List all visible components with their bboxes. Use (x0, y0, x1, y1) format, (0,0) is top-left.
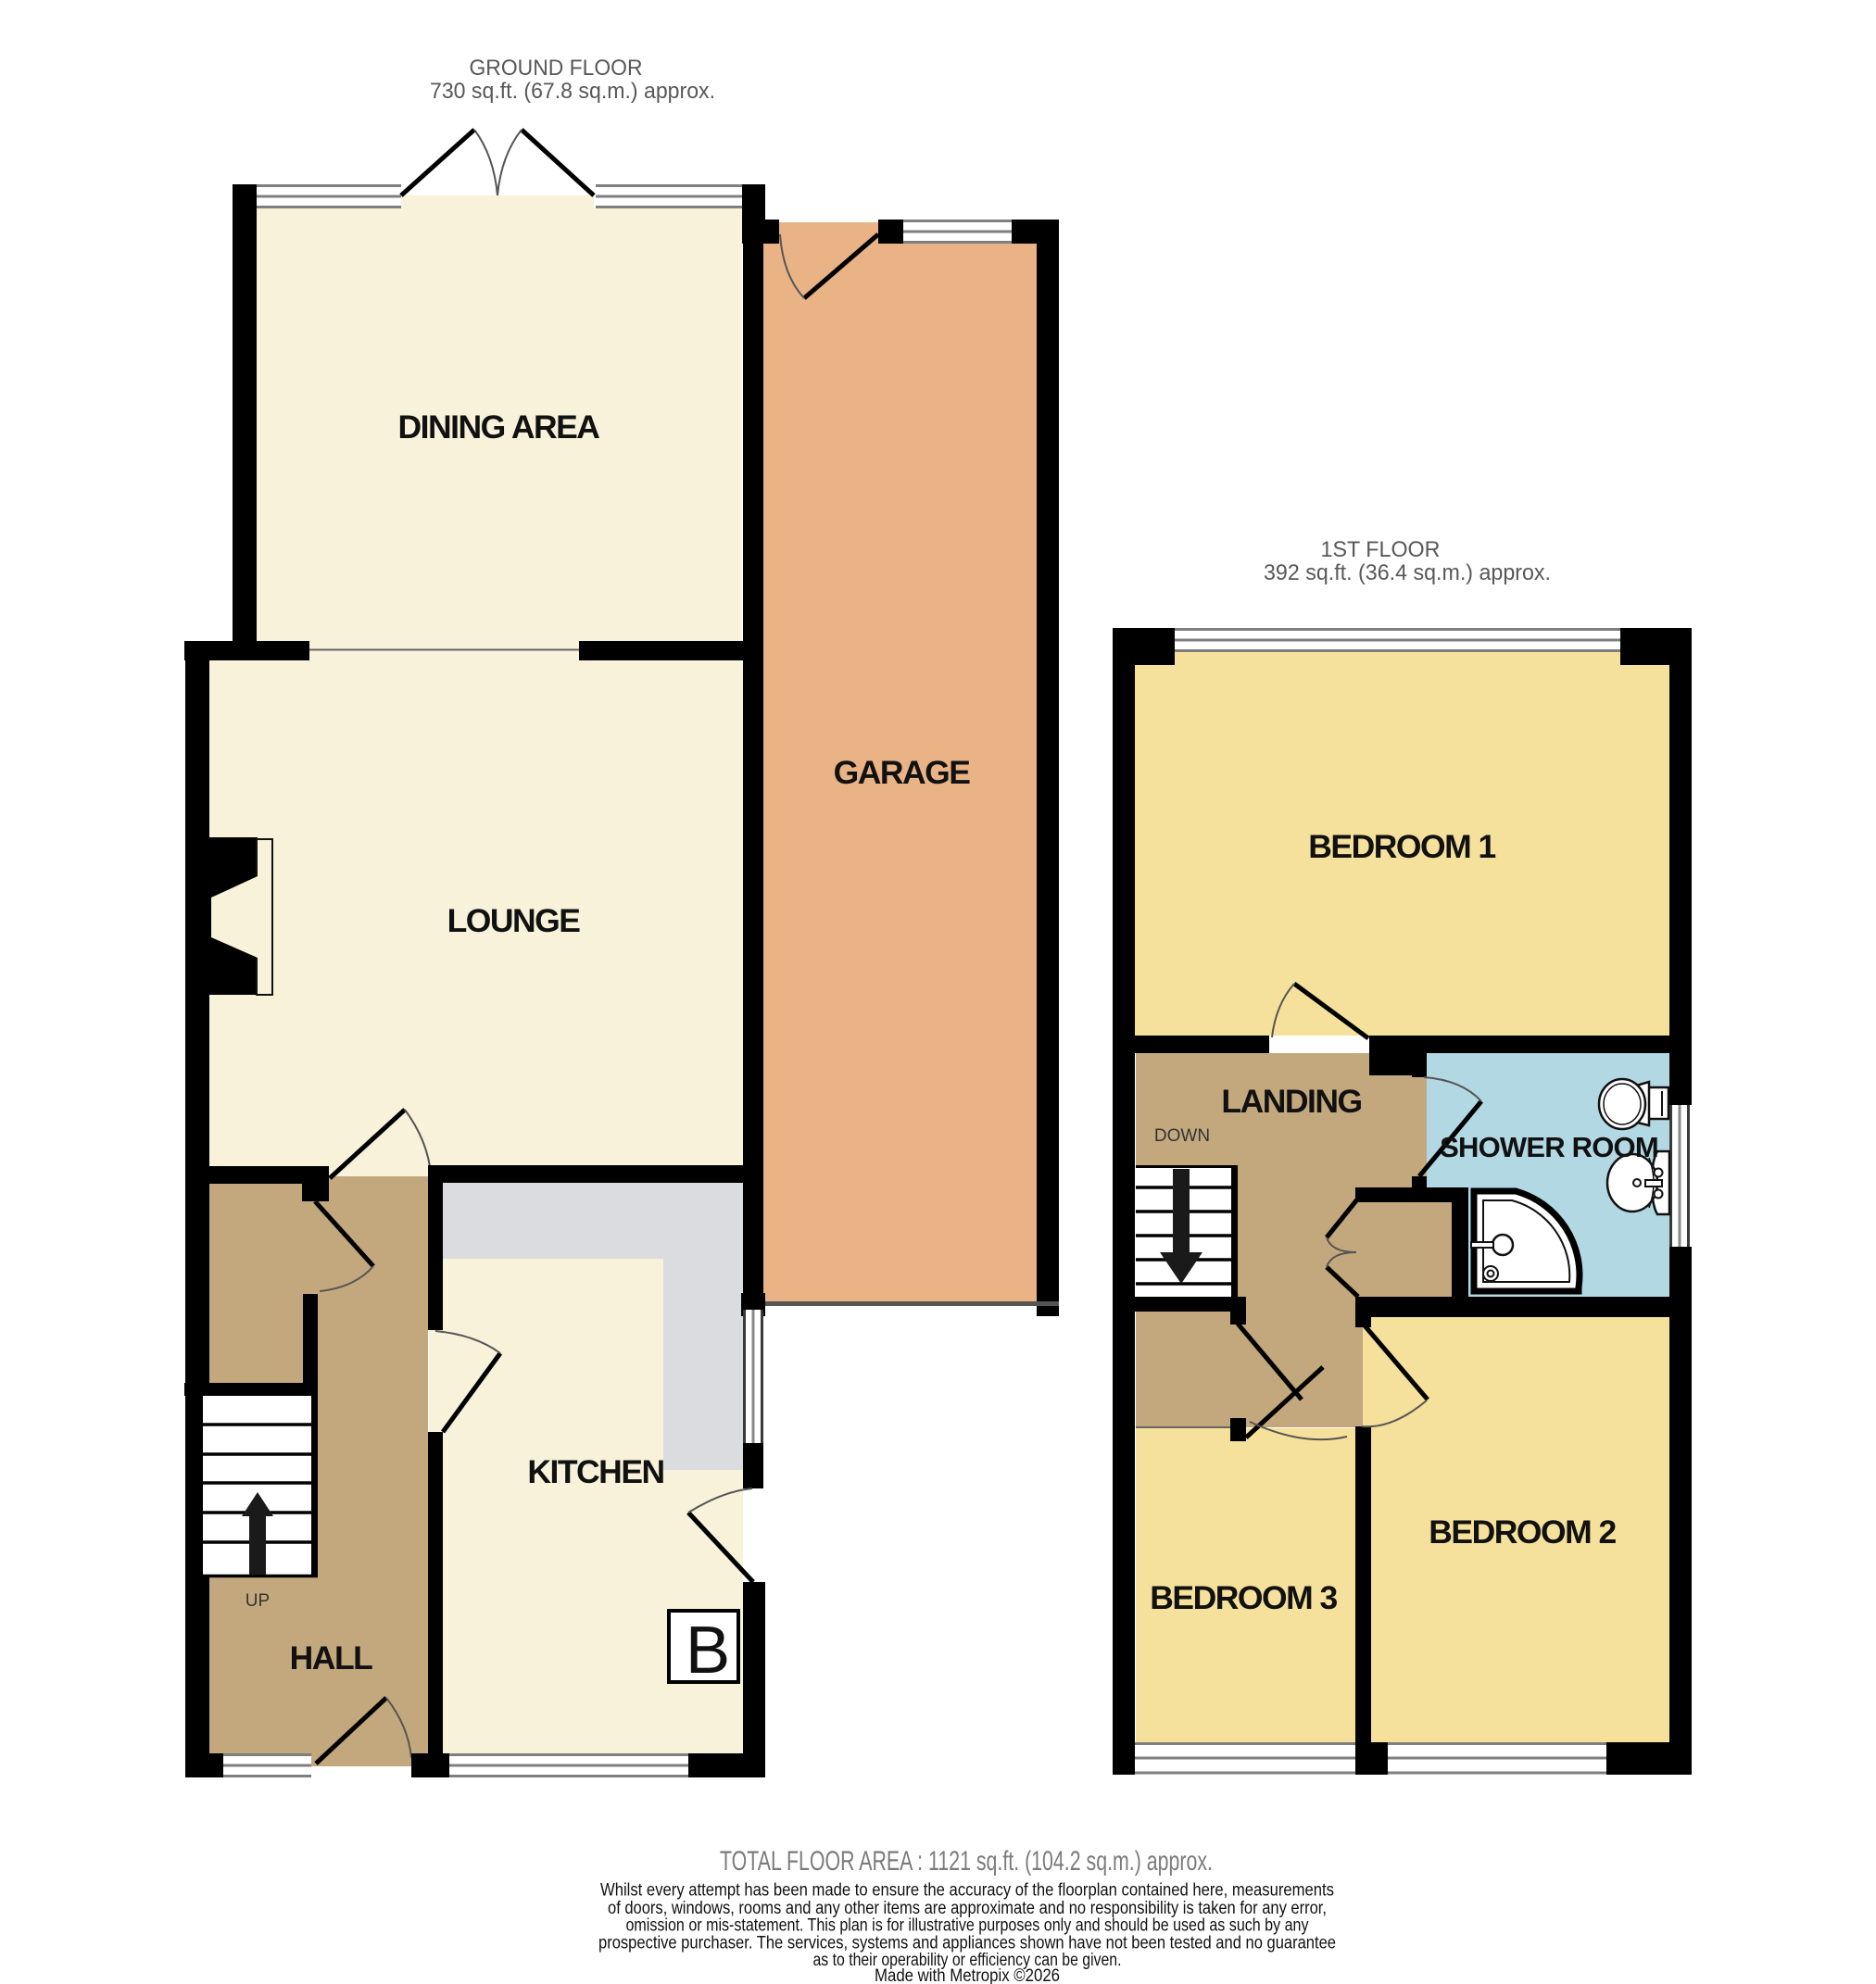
svg-text:UP: UP (246, 1591, 270, 1611)
svg-text:1ST FLOOR: 1ST FLOOR (1321, 537, 1441, 562)
svg-text:392 sq.ft. (36.4 sq.m.) approx: 392 sq.ft. (36.4 sq.m.) approx. (1264, 560, 1551, 585)
svg-text:GROUND FLOOR: GROUND FLOOR (470, 56, 643, 81)
svg-text:KITCHEN: KITCHEN (527, 1453, 663, 1490)
svg-text:BEDROOM 1: BEDROOM 1 (1308, 828, 1495, 865)
svg-text:LOUNGE: LOUNGE (447, 902, 581, 939)
svg-text:of doors, windows, rooms and a: of doors, windows, rooms and any other i… (608, 1899, 1327, 1918)
svg-text:DINING AREA: DINING AREA (398, 408, 600, 446)
svg-text:TOTAL FLOOR AREA : 1121 sq.ft.: TOTAL FLOOR AREA : 1121 sq.ft. (104.2 sq… (720, 1846, 1213, 1877)
svg-text:DOWN: DOWN (1154, 1126, 1210, 1146)
svg-text:GARAGE: GARAGE (834, 754, 971, 791)
svg-text:HALL: HALL (290, 1639, 372, 1676)
svg-text:Whilst every attempt has been: Whilst every attempt has been made to en… (600, 1881, 1334, 1901)
svg-text:LANDING: LANDING (1221, 1083, 1361, 1120)
svg-text:B: B (686, 1613, 730, 1688)
svg-text:BEDROOM 3: BEDROOM 3 (1150, 1579, 1337, 1616)
svg-text:Made with Metropix ©2026: Made with Metropix ©2026 (875, 1966, 1060, 1984)
svg-text:SHOWER ROOM: SHOWER ROOM (1440, 1131, 1658, 1163)
svg-text:BEDROOM 2: BEDROOM 2 (1429, 1513, 1616, 1551)
svg-text:730 sq.ft. (67.8 sq.m.) approx: 730 sq.ft. (67.8 sq.m.) approx. (430, 79, 715, 104)
